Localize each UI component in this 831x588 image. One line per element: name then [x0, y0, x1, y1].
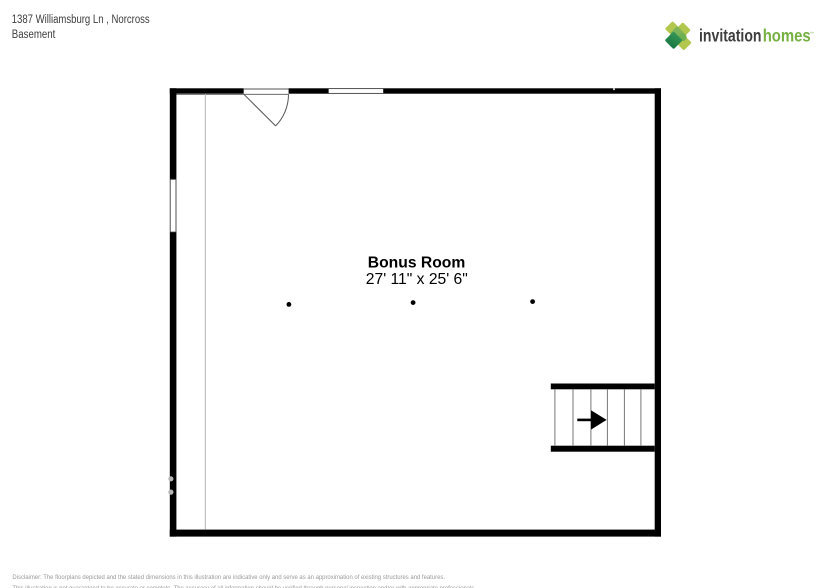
svg-text:27' 11" x 25' 6": 27' 11" x 25' 6" [366, 271, 468, 288]
svg-text:1387 Williamsburg Ln , Norcros: 1387 Williamsburg Ln , Norcross [12, 14, 150, 26]
svg-text:homes: homes [763, 25, 811, 45]
svg-text:Bonus Room: Bonus Room [368, 255, 466, 272]
svg-text:Basement: Basement [12, 29, 56, 41]
svg-text:invitation: invitation [699, 25, 762, 45]
svg-text:Disclaimer: The floorplans dep: Disclaimer: The floorplans depicted and … [12, 574, 445, 581]
svg-text:™: ™ [810, 31, 814, 36]
